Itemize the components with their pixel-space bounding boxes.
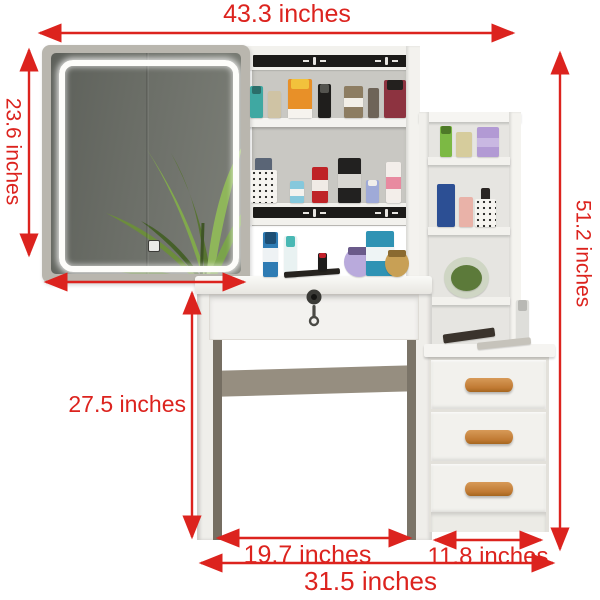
dim-label-base-width: 31.5 inches bbox=[248, 567, 493, 596]
dim-label-top-width: 43.3 inches bbox=[137, 1, 437, 29]
dim-label-desk-height: 27.5 inches bbox=[18, 392, 186, 417]
product-image-canvas: 43.3 inches 23.6 inches 51.2 inches 27.5… bbox=[0, 0, 600, 600]
dim-label-mirror-height: 23.6 inches bbox=[1, 52, 24, 252]
dim-label-total-height: 51.2 inches bbox=[571, 154, 594, 354]
dimension-arrows bbox=[0, 0, 600, 600]
